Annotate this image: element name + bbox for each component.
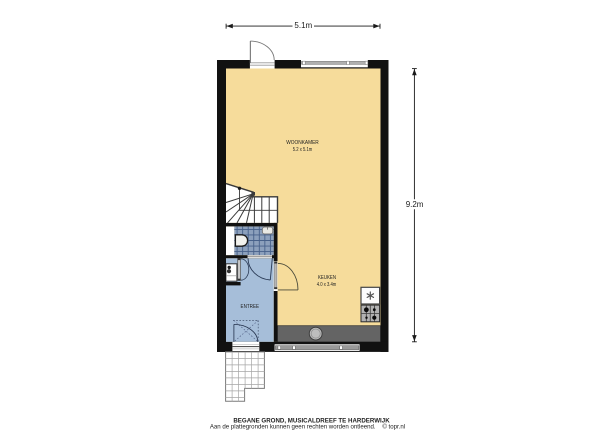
svg-text:5.1m: 5.1m bbox=[294, 21, 312, 30]
svg-text:9.2m: 9.2m bbox=[406, 200, 424, 209]
svg-text:KEUKEN: KEUKEN bbox=[318, 275, 336, 281]
svg-text:4.0 x 3.4m: 4.0 x 3.4m bbox=[317, 282, 337, 288]
svg-text:ENTREE: ENTREE bbox=[241, 304, 260, 310]
svg-text:Aan de plattegronden kunnen ge: Aan de plattegronden kunnen geen rechten… bbox=[210, 424, 405, 431]
svg-text:5.2 x 5.1m: 5.2 x 5.1m bbox=[293, 147, 313, 153]
svg-text:WOONKAMER: WOONKAMER bbox=[286, 140, 319, 146]
